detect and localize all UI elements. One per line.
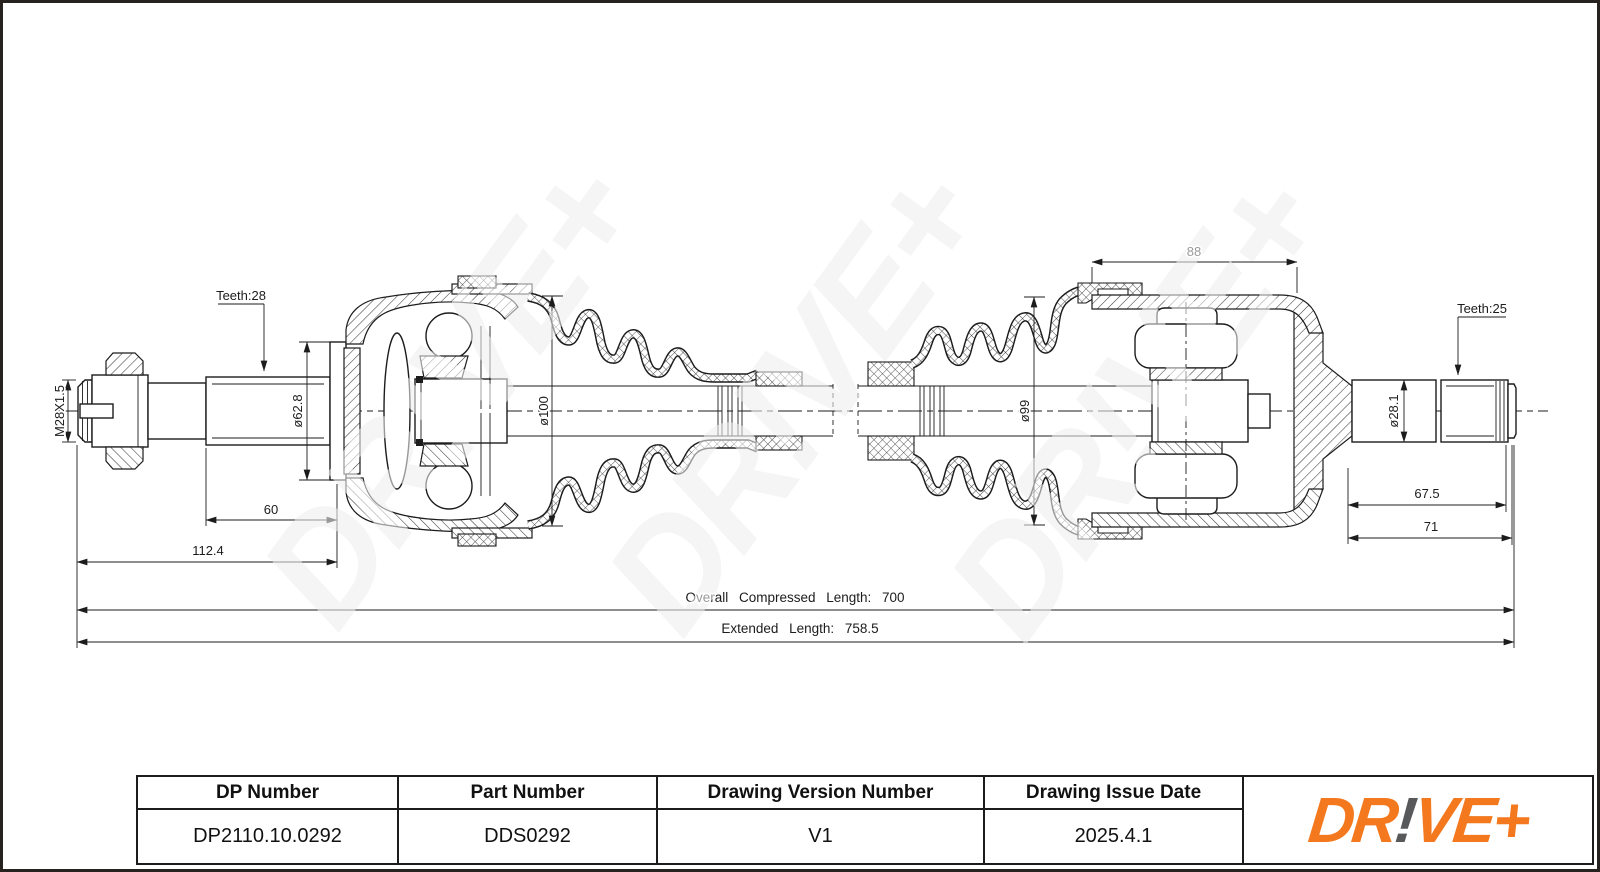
dim-label-dia-shaft-left: ø62.8	[290, 394, 305, 427]
header-dp-number: DP Number	[138, 777, 397, 810]
dim-label-thread: M28X1.5	[52, 385, 67, 437]
keyway-slot	[80, 404, 113, 418]
roller-cap	[1157, 308, 1217, 324]
boot-clamp-small-right	[868, 362, 914, 386]
dimension-len-spline-left: 60	[206, 448, 337, 568]
boot-clamp-band	[458, 276, 496, 288]
axle-technical-drawing: M28X1.5 Teeth:28 ø62.8 ø100 ø99	[3, 3, 1597, 869]
label-teeth-left: Teeth:28	[216, 288, 266, 303]
dim-label-len-spline-right: 67.5	[1414, 486, 1439, 501]
value-dp-number: DP2110.10.0292	[138, 810, 397, 863]
dim-label-len-spline-left: 60	[264, 502, 278, 517]
drive-plus-logo: DR!VE+	[1305, 788, 1530, 852]
dimension-len-stub-left: 112.4	[77, 445, 337, 614]
value-drawing-version: V1	[658, 810, 983, 863]
dim-label-len-stub-right: 71	[1424, 519, 1438, 534]
spline-section-right	[1441, 380, 1508, 442]
column-drawing-version: Drawing Version Number V1	[658, 777, 985, 863]
value-issue-date: 2025.4.1	[985, 810, 1242, 863]
dim-label-len-joint-right: 88	[1187, 244, 1201, 259]
dimension-teeth-right: Teeth:25	[1457, 301, 1507, 375]
logo-text-ve-plus: VE+	[1410, 784, 1531, 856]
boot-clamp-small-left	[756, 372, 802, 386]
drawing-sheet-frame: DR!VE+ DR!VE+ DR!VE+	[0, 0, 1600, 872]
title-block-table: DP Number DP2110.10.0292 Part Number DDS…	[136, 775, 1594, 865]
stake-nut-flange	[106, 353, 143, 375]
header-part-number: Part Number	[399, 777, 656, 810]
output-spline-shaft	[1352, 380, 1516, 442]
header-drawing-version: Drawing Version Number	[658, 777, 983, 810]
dim-label-overall-compressed: Overall Compressed Length: 700	[685, 590, 904, 605]
spline-section-left	[206, 377, 330, 445]
joint-hub	[415, 379, 507, 443]
dim-label-len-stub-left: 112.4	[192, 543, 224, 558]
logo-text-dr: DR	[1305, 784, 1399, 856]
bearing-ball	[426, 313, 472, 359]
dim-label-dia-boot-right: ø99	[1017, 400, 1032, 422]
dimension-extended: Extended Length: 758.5	[77, 614, 1514, 648]
dim-label-extended: Extended Length: 758.5	[721, 621, 878, 636]
column-issue-date: Drawing Issue Date 2025.4.1	[985, 777, 1244, 863]
label-teeth-right: Teeth:25	[1457, 301, 1507, 316]
inner-race	[420, 356, 468, 378]
logo-cell: DR!VE+	[1244, 777, 1592, 863]
joint-housing-wall	[1294, 309, 1352, 513]
dim-label-dia-boot-left: ø100	[536, 396, 551, 426]
dim-label-dia-shaft-right: ø28.1	[1386, 394, 1401, 427]
dimension-teeth-left: Teeth:28	[216, 288, 266, 371]
header-issue-date: Drawing Issue Date	[985, 777, 1242, 810]
value-part-number: DDS0292	[399, 810, 656, 863]
column-part-number: Part Number DDS0292	[399, 777, 658, 863]
column-dp-number: DP Number DP2110.10.0292	[138, 777, 399, 863]
